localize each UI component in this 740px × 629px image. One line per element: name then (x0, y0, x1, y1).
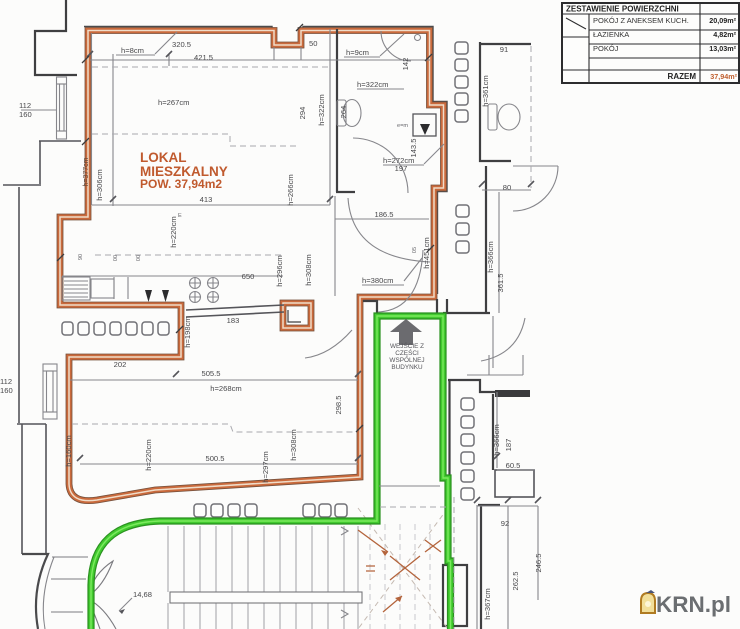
svg-text:POKÓJ Z ANEKSEM KUCH.: POKÓJ Z ANEKSEM KUCH. (593, 16, 689, 25)
svg-text:h=361cm: h=361cm (481, 75, 490, 106)
svg-text:112: 112 (0, 377, 12, 386)
svg-text:ŁAZIENKA: ŁAZIENKA (593, 30, 629, 39)
svg-text:262.5: 262.5 (511, 571, 520, 590)
svg-text:CZĘŚCI: CZĘŚCI (395, 348, 419, 357)
svg-text:h=306cm: h=306cm (95, 169, 104, 200)
svg-text:h=9cm: h=9cm (346, 48, 369, 57)
svg-text:294: 294 (298, 107, 307, 120)
svg-text:h=268cm: h=268cm (210, 384, 241, 393)
svg-text:160: 160 (0, 386, 13, 395)
svg-text:h=266cm: h=266cm (286, 174, 295, 205)
svg-text:90: 90 (78, 254, 84, 260)
svg-text:h=308cm: h=308cm (289, 429, 298, 460)
svg-text:ZESTAWIENIE POWIERZCHNI: ZESTAWIENIE POWIERZCHNI (566, 5, 679, 14)
svg-text:00: 00 (136, 255, 142, 261)
svg-text:142: 142 (401, 58, 410, 71)
svg-text:e=m: e=m (397, 123, 408, 129)
svg-text:50: 50 (309, 39, 317, 48)
svg-text:WSPÓLNEJ: WSPÓLNEJ (389, 355, 424, 364)
svg-text:h=366cm: h=366cm (492, 424, 501, 455)
svg-text:h=367cm: h=367cm (483, 588, 492, 619)
svg-text:BUDYNKU: BUDYNKU (391, 364, 423, 371)
svg-text:183: 183 (227, 316, 240, 325)
svg-text:202: 202 (114, 360, 127, 369)
svg-text:160: 160 (19, 110, 32, 119)
svg-text:RAZEM: RAZEM (668, 72, 697, 81)
svg-text:h=322cm: h=322cm (357, 80, 388, 89)
svg-text:92: 92 (501, 519, 509, 528)
svg-text:h=451cm: h=451cm (422, 237, 431, 268)
svg-text:361.5: 361.5 (496, 273, 505, 292)
svg-text:POKÓJ: POKÓJ (593, 44, 619, 53)
svg-text:112: 112 (19, 101, 31, 110)
svg-text:505.5: 505.5 (201, 369, 220, 378)
svg-text:91: 91 (500, 45, 508, 54)
svg-text:05: 05 (412, 247, 418, 253)
svg-text:00: 00 (113, 255, 119, 261)
svg-text:h=297cm: h=297cm (261, 451, 270, 482)
svg-text:298.5: 298.5 (334, 395, 343, 414)
svg-text:187: 187 (504, 439, 513, 452)
svg-text:LOKAL: LOKAL (140, 150, 187, 165)
svg-text:h=308cm: h=308cm (304, 254, 313, 285)
svg-text:POW. 37,94m2: POW. 37,94m2 (140, 177, 222, 191)
svg-text:h=380cm: h=380cm (362, 276, 393, 285)
svg-text:h=160cm: h=160cm (64, 435, 73, 466)
svg-text:WEJŚCIE Z: WEJŚCIE Z (390, 341, 424, 350)
svg-text:4,82m²: 4,82m² (713, 30, 736, 39)
svg-text:650: 650 (242, 272, 255, 281)
svg-text:500.5: 500.5 (205, 454, 224, 463)
svg-text:14,68: 14,68 (133, 590, 152, 599)
svg-text:186.5: 186.5 (374, 210, 393, 219)
svg-text:37,94m²: 37,94m² (710, 72, 737, 81)
svg-text:413: 413 (200, 195, 213, 204)
svg-text:h=8cm: h=8cm (121, 46, 144, 55)
svg-text:143.5: 143.5 (409, 138, 418, 157)
svg-text:246.5: 246.5 (534, 553, 543, 572)
svg-text:h=322cm: h=322cm (317, 94, 326, 125)
svg-text:h=377cm: h=377cm (83, 157, 90, 186)
svg-text:KRN.pl: KRN.pl (656, 592, 731, 617)
svg-text:13,03m²: 13,03m² (709, 44, 736, 53)
svg-text:60.5: 60.5 (506, 461, 521, 470)
svg-text:80: 80 (503, 183, 511, 192)
svg-text:h=220cm: h=220cm (169, 216, 178, 247)
svg-text:421.5: 421.5 (194, 53, 213, 62)
svg-text:h=296cm: h=296cm (275, 255, 284, 286)
svg-text:h=198cm: h=198cm (183, 316, 192, 347)
svg-text:E: E (178, 213, 182, 219)
svg-text:264: 264 (339, 106, 348, 119)
svg-text:20,09m²: 20,09m² (709, 16, 736, 25)
svg-text:320.5: 320.5 (172, 40, 191, 49)
svg-text:h=220cm: h=220cm (144, 439, 153, 470)
svg-text:h=366cm: h=366cm (486, 241, 495, 272)
svg-text:197: 197 (395, 164, 408, 173)
svg-text:h=267cm: h=267cm (158, 98, 189, 107)
